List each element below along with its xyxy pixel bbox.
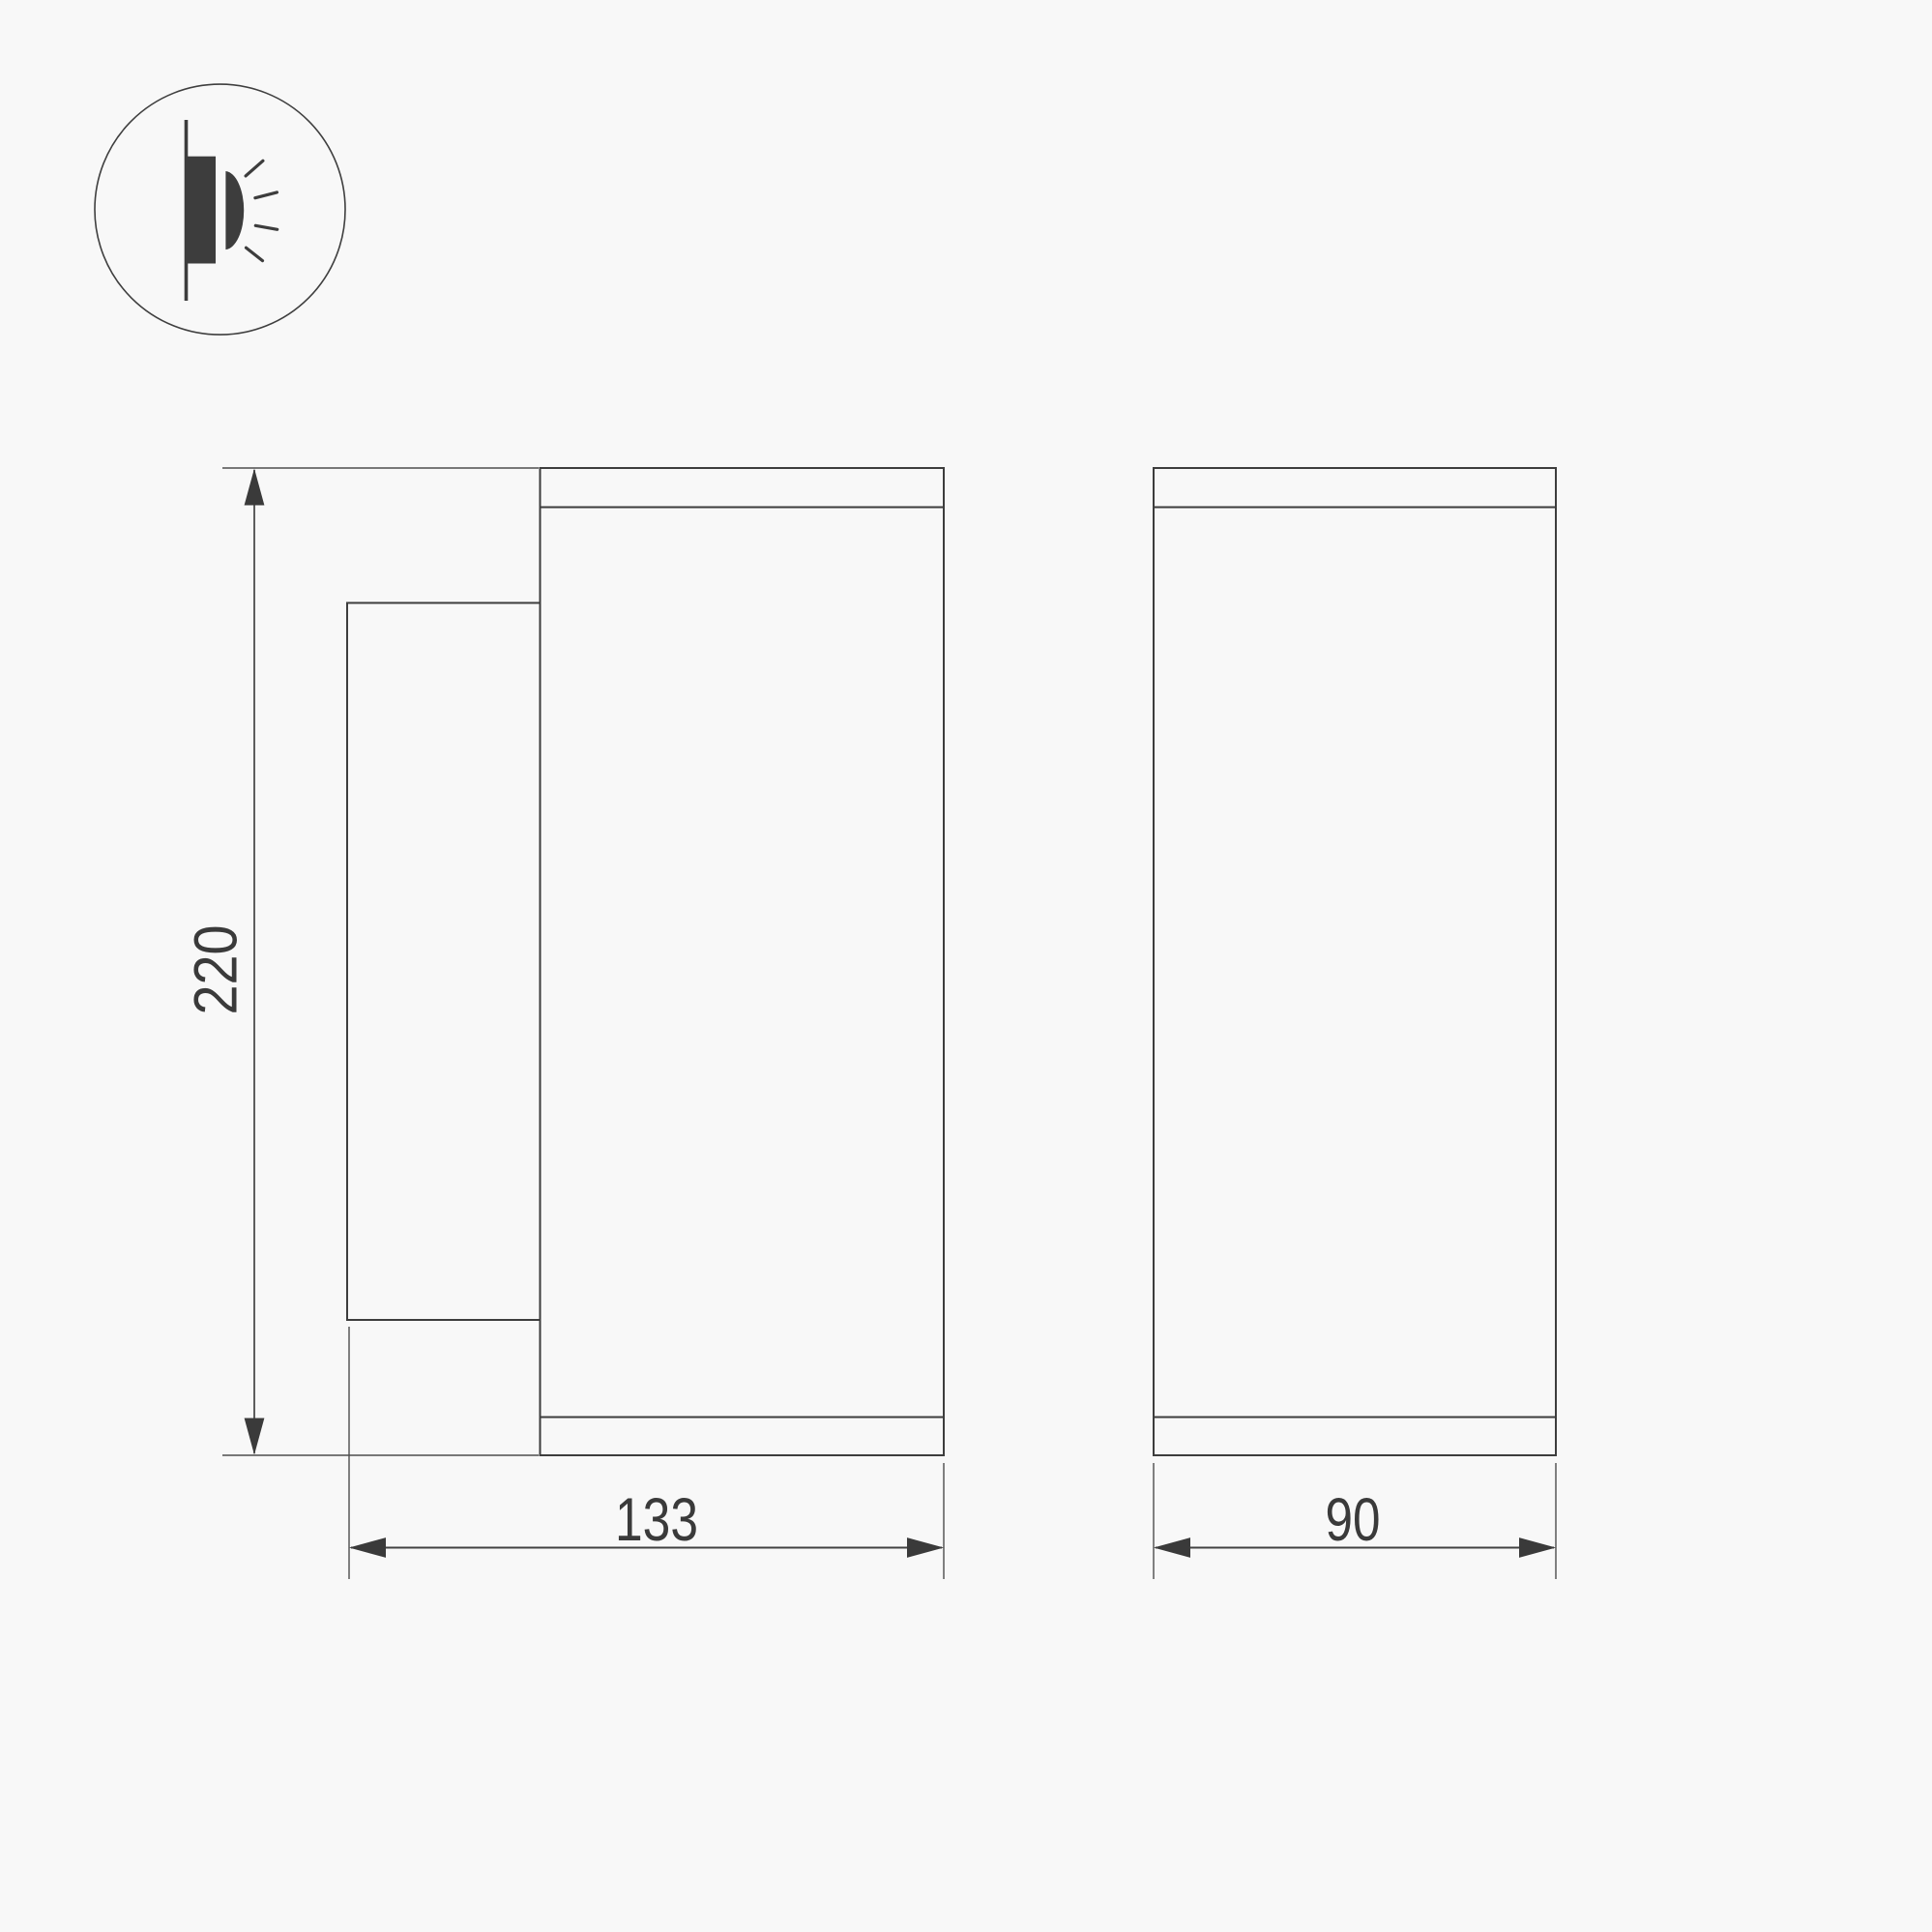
svg-text:90: 90: [1326, 1486, 1381, 1554]
svg-text:133: 133: [615, 1486, 698, 1554]
svg-text:220: 220: [183, 925, 250, 1015]
